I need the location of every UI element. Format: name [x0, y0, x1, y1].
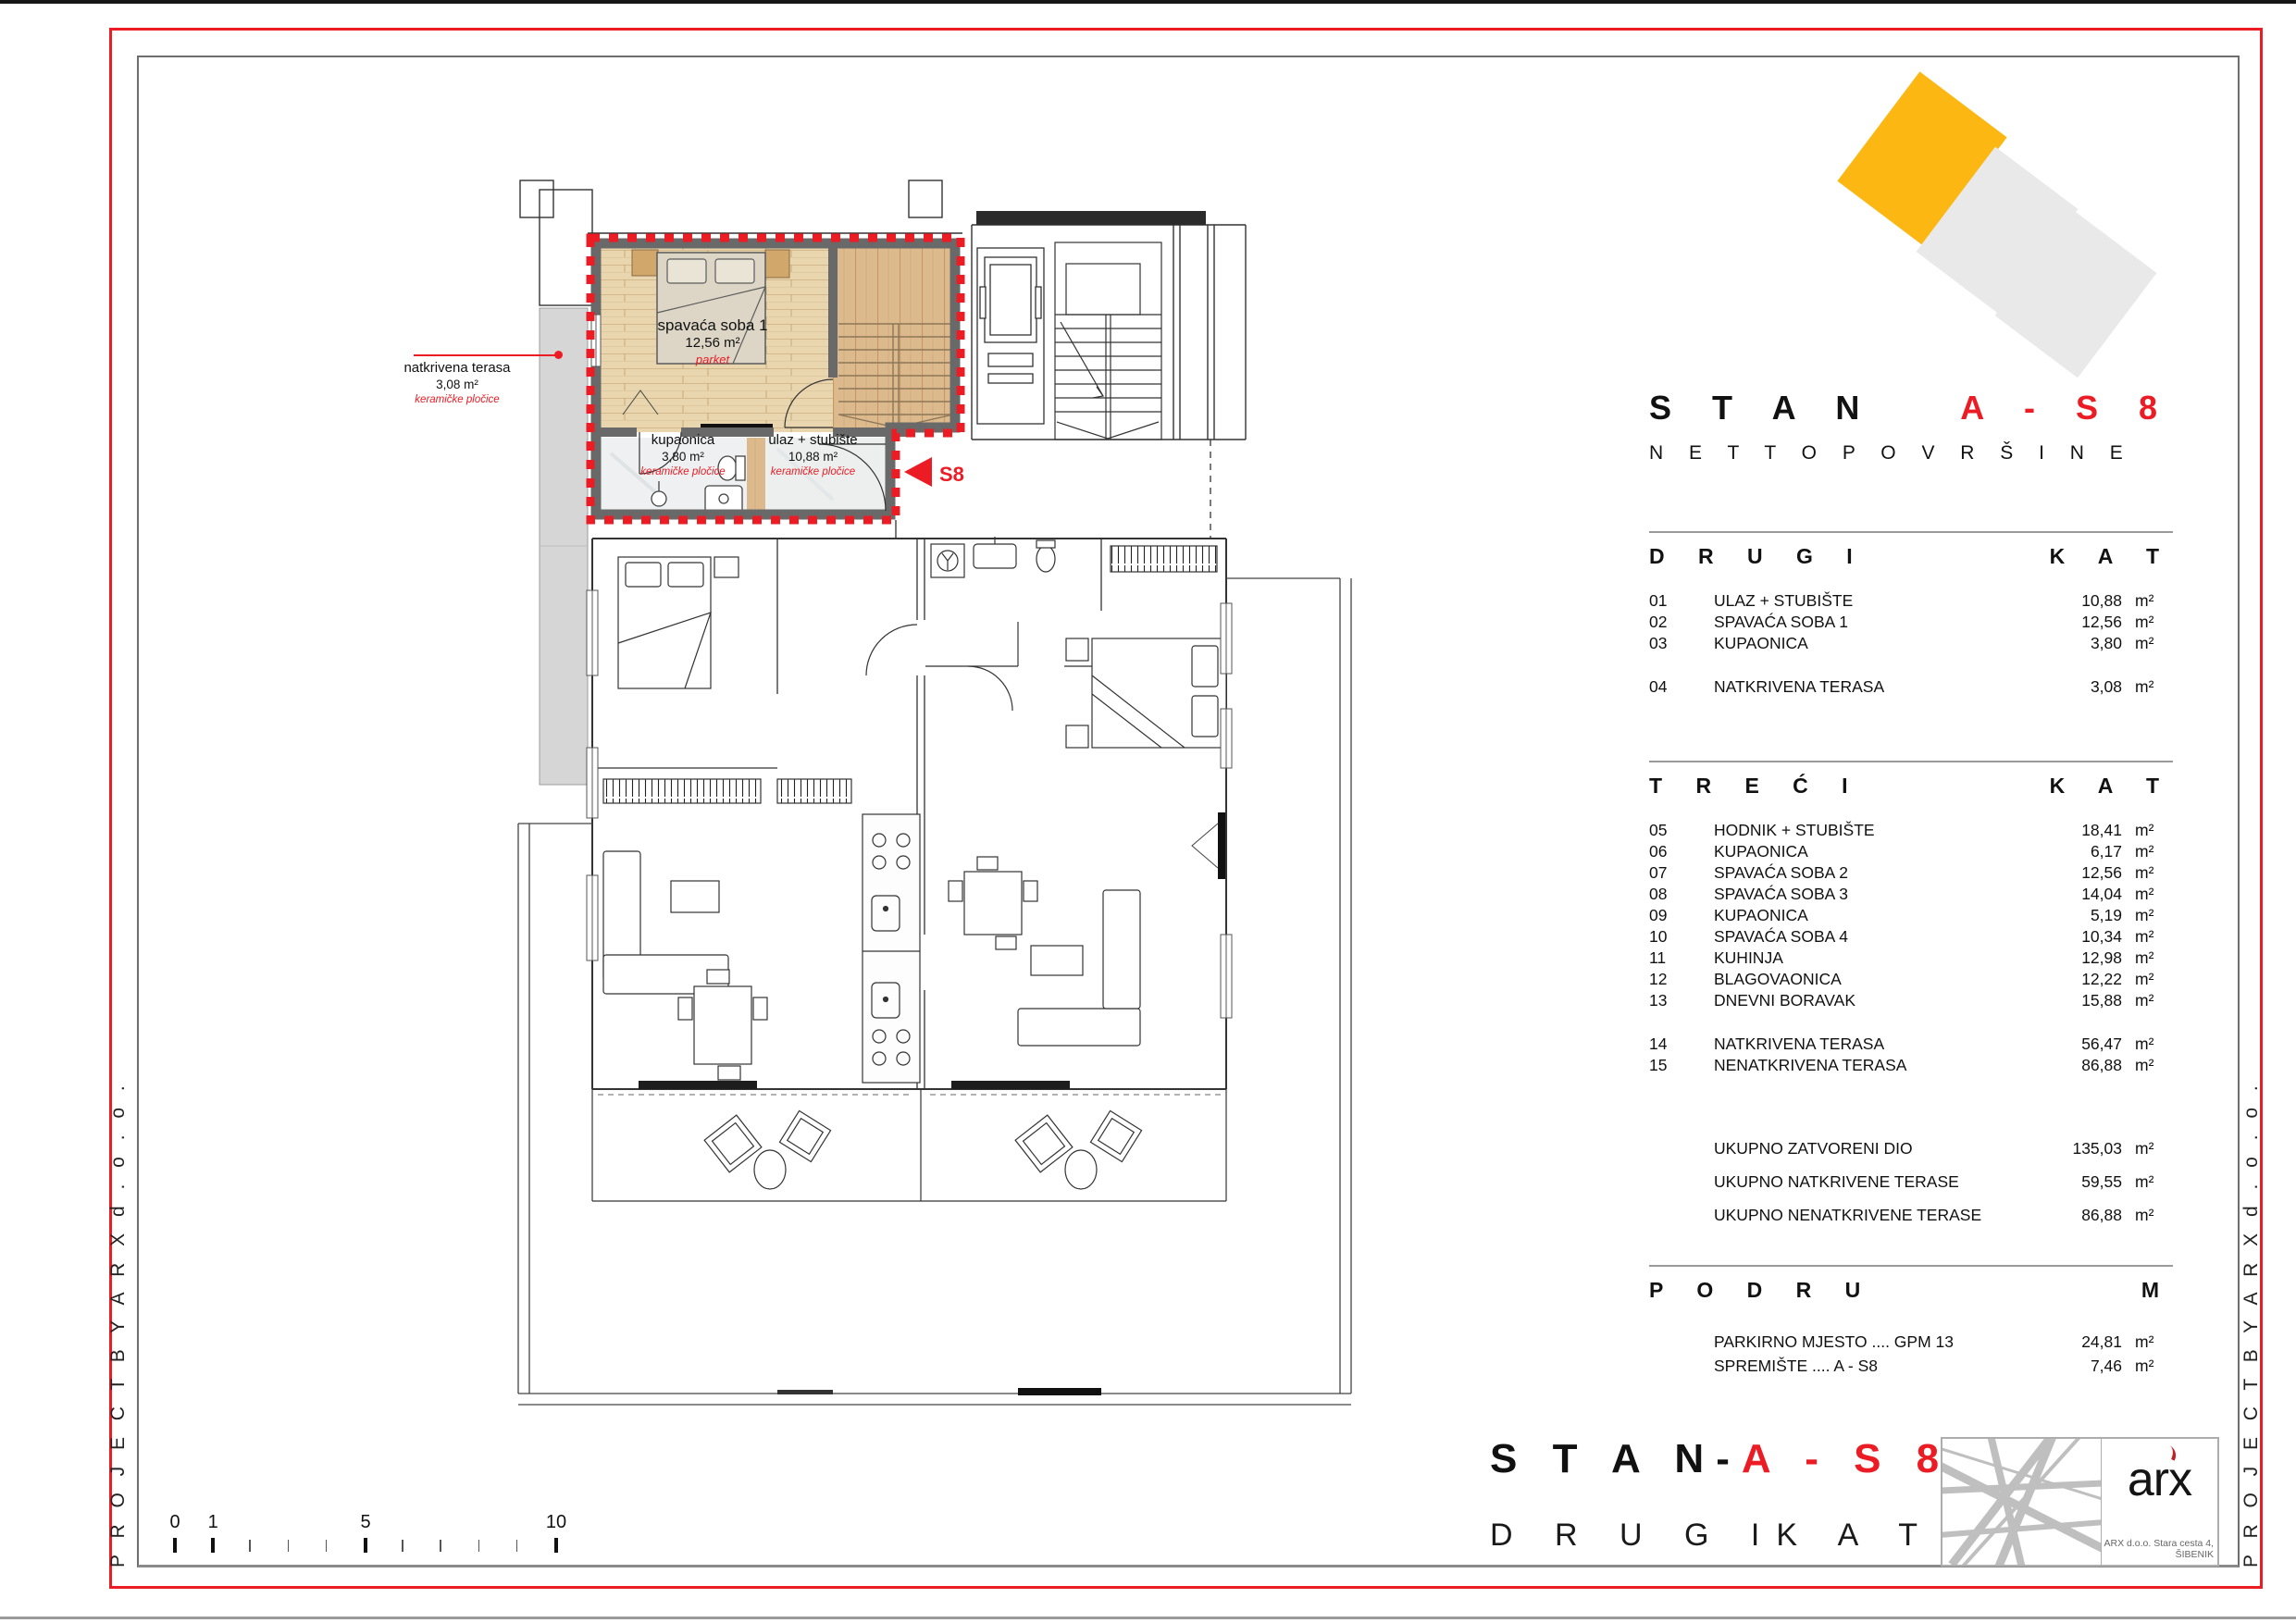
- titleblock-apartment: S T A N - A - S 8: [1490, 1436, 1914, 1482]
- arx-address: ARX d.o.o. Stara cesta 4, ŠIBENIK: [2102, 1538, 2214, 1560]
- scale-label: 0: [169, 1512, 180, 1533]
- scale-tick: [554, 1538, 558, 1553]
- arx-logo: arx: [2102, 1452, 2217, 1507]
- table-row: 11KUHINJA12,98m²: [1649, 948, 2173, 969]
- section-divider: [1649, 531, 2173, 533]
- podrum-rows: PARKIRNO MJESTO .... GPM 1324,81m²SPREMI…: [1649, 1330, 2173, 1378]
- scale-label: 5: [360, 1512, 370, 1533]
- titleblock-code: A - S 8: [1742, 1436, 1951, 1482]
- arx-pattern-box: [1941, 1437, 2103, 1567]
- side-text-left: P R O J E C T B Y A R X d . o . o .: [107, 1094, 139, 1567]
- table-row: 12BLAGOVAONICA12,22m²: [1649, 969, 2173, 990]
- scale-label: 10: [546, 1512, 566, 1533]
- podrum-header: P O D R U M: [1649, 1278, 2173, 1306]
- net-areas-panel: S T A N A - S 8 N E T T O P O V R Š I N …: [1649, 389, 2173, 1378]
- total-row: UKUPNO NATKRIVENE TERASE59,55m²: [1649, 1165, 2173, 1198]
- right-apartment-furniture: [931, 537, 1226, 1046]
- scale-tick: [516, 1540, 518, 1552]
- scale-tick: [440, 1540, 441, 1552]
- section-header: T R E Ć IK A T: [1649, 774, 2173, 801]
- table-row: 06KUPAONICA6,17m²: [1649, 841, 2173, 862]
- scale-tick: [173, 1538, 177, 1553]
- total-row: UKUPNO ZATVORENI DIO135,03m²: [1649, 1132, 2173, 1165]
- scale-bar: 01510: [173, 1512, 580, 1564]
- page-top-edge: [0, 0, 2296, 4]
- scale-tick: [249, 1540, 251, 1552]
- unit-marker-arrow: [904, 457, 932, 487]
- scale-tick: [326, 1540, 328, 1552]
- panel-title: S T A N A - S 8: [1649, 389, 2173, 431]
- table-row: 04NATKRIVENA TERASA3,08m²: [1649, 676, 2173, 698]
- podrum-divider: [1649, 1265, 2173, 1267]
- kitchens: [863, 814, 920, 1083]
- table-row: 10SPAVAĆA SOBA 410,34m²: [1649, 926, 2173, 948]
- entry-label: ulaz + stubište 10,88 m² keramičke ploči…: [746, 432, 880, 478]
- titleblock-floor-left: D R U G I: [1490, 1518, 1776, 1554]
- panel-title-red: A - S 8: [1960, 389, 2173, 427]
- table-row: 15NENATKRIVENA TERASA86,88m²: [1649, 1055, 2173, 1076]
- table-row: 05HODNIK + STUBIŠTE18,41m²: [1649, 820, 2173, 841]
- bathroom-label: kupaonica 3,80 m² keramičke pločice: [614, 432, 752, 478]
- elevator: [977, 248, 1044, 424]
- arx-crisscross: [1942, 1439, 2101, 1565]
- page-bottom-edge: [0, 1617, 2296, 1619]
- table-row: 13DNEVNI BORAVAK15,88m²: [1649, 990, 2173, 1011]
- stairs-bw: [1055, 242, 1161, 440]
- titleblock-floor-right: K A T: [1776, 1518, 1934, 1554]
- section-rows: 01ULAZ + STUBIŠTE10,88m²02SPAVAĆA SOBA 1…: [1649, 590, 2173, 698]
- totals: UKUPNO ZATVORENI DIO135,03m²UKUPNO NATKR…: [1649, 1132, 2173, 1232]
- covered-terrace-label: natkrivena terasa 3,08 m² keramičke ploč…: [384, 360, 530, 406]
- scale-tick: [402, 1540, 403, 1552]
- table-row: 02SPAVAĆA SOBA 112,56m²: [1649, 612, 2173, 633]
- section-header: D R U G IK A T: [1649, 544, 2173, 572]
- lounge-terrace: [592, 1089, 1226, 1201]
- top-beam: [976, 211, 1206, 225]
- arx-logo-box: arx ARX d.o.o. Stara cesta 4, ŠIBENIK: [2102, 1437, 2219, 1567]
- floor-plan: S8: [500, 176, 1370, 1443]
- table-row: 01ULAZ + STUBIŠTE10,88m²: [1649, 590, 2173, 612]
- total-row: UKUPNO NENATKRIVENE TERASE86,88m²: [1649, 1198, 2173, 1232]
- titleblock-stan: S T A N: [1490, 1436, 1716, 1482]
- tv-wall: [1218, 812, 1225, 879]
- section-rows: 05HODNIK + STUBIŠTE18,41m²06KUPAONICA6,1…: [1649, 820, 2173, 1076]
- panel-title-black: S T A N: [1649, 389, 1875, 427]
- podrum-row: PARKIRNO MJESTO .... GPM 1324,81m²: [1649, 1330, 2173, 1354]
- table-row: 08SPAVAĆA SOBA 314,04m²: [1649, 884, 2173, 905]
- terrace-leader-dot: [554, 351, 563, 359]
- panel-subtitle: N E T T O P O V R Š I N E: [1649, 442, 2173, 468]
- area-sections: D R U G IK A T01ULAZ + STUBIŠTE10,88m²02…: [1649, 531, 2173, 1076]
- table-row: 03KUPAONICA3,80m²: [1649, 633, 2173, 654]
- unit-marker-label: S8: [939, 463, 964, 486]
- titleblock-dash: -: [1716, 1436, 1742, 1482]
- side-text-right: P R O J E C T B Y A R X d . o . o .: [2240, 1094, 2272, 1567]
- section-divider: [1649, 761, 2173, 762]
- podrum-header-left: P O D R U: [1649, 1278, 1874, 1306]
- bedroom-label: spavaća soba 1 12,56 m² parket: [639, 316, 787, 367]
- podrum-row: SPREMIŠTE .... A - S87,46m²: [1649, 1354, 2173, 1378]
- scale-tick: [478, 1540, 480, 1552]
- titleblock-floor: D R U G I K A T: [1490, 1518, 1908, 1554]
- table-row: 14NATKRIVENA TERASA56,47m²: [1649, 1034, 2173, 1055]
- podrum-header-right: M: [2141, 1278, 2173, 1306]
- terrace-leader-line: [414, 354, 560, 356]
- scale-tick: [364, 1538, 367, 1553]
- scale-tick: [288, 1540, 290, 1552]
- scale-tick: [211, 1538, 215, 1553]
- table-row: 09KUPAONICA5,19m²: [1649, 905, 2173, 926]
- scale-label: 1: [208, 1512, 218, 1533]
- table-row: 07SPAVAĆA SOBA 212,56m²: [1649, 862, 2173, 884]
